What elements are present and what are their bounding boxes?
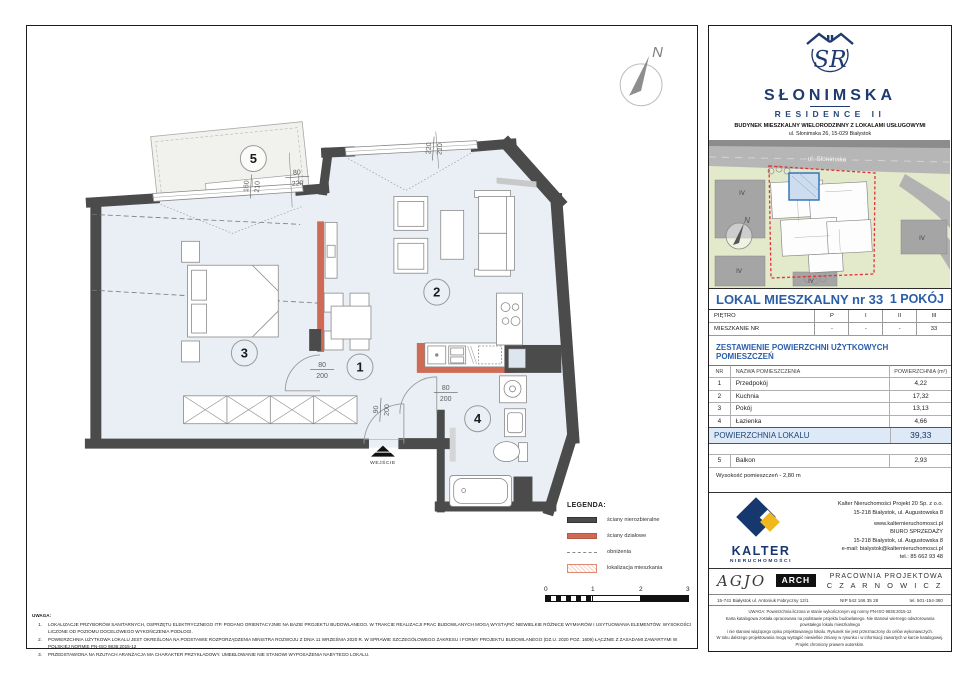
kalter-wordmark-sub: NIERUCHOMOŚCI [717,559,805,564]
scale-tick-3: 3 [686,586,690,593]
radiator [450,428,456,462]
unit-room-count: 1 POKÓJ [890,292,944,306]
fine-print: UWAGA: Powierzchnia liczona w stanie wyk… [709,605,951,651]
bathroom-sink [505,409,526,437]
block-label: IV [808,279,814,285]
unit-location-swatch [567,564,597,573]
svg-text:200: 200 [316,373,328,380]
catalog-sheet: N [0,0,960,678]
floor-plan-panel: N [26,25,698,649]
svg-text:2: 2 [433,285,440,300]
brand-subname: RESIDENCE II [709,109,951,119]
svg-text:210: 210 [254,181,262,193]
scale-tick-2: 2 [639,586,643,593]
scale-bar: 0 1 2 3 [545,586,689,602]
apartment-no-value: 33 [917,323,951,336]
svg-text:SR: SR [813,47,846,73]
apartment-no-label: MIESZKANIE NR [709,323,815,336]
floor-row-label: PIĘTRO [709,310,815,323]
studio-name: PRACOWNIA PROJEKTOWA C Z A R N O W I C Z [827,573,943,590]
studio-address: 15-741 Białystok ul. Antoniuk Fabryczny … [717,598,809,603]
entrance-marker: WEJŚCIE [370,446,396,466]
note-2: 2. POWIERZCHNIA UŻYTKOWA LOKALU JEST OKR… [32,636,692,651]
svg-text:220: 220 [425,142,433,154]
ceiling-drop-swatch [567,552,597,553]
col-header-area: POWIERZCHNIA (m²) [890,365,951,377]
room-5-badge: 5 [240,146,266,172]
area-section-title: ZESTAWIENIE POWIERZCHNI UŻYTKOWYCH POMIE… [709,336,951,365]
table-row: 4 [709,415,731,428]
block-label: IV [739,191,745,197]
legend-item-unit-location: lokalizacja mieszkania [567,564,707,572]
agjo-wordmark: AGJO [717,572,766,590]
block-label: IV [736,269,742,275]
svg-text:80: 80 [293,169,301,177]
developer-contact: Kalter Nieruchomości Projekt 20 Sp. z o.… [805,500,943,562]
compass: N [620,44,663,106]
brand-name: SŁONIMSKA [709,87,951,105]
balcony-row: 5 Balkon 2,93 [709,454,951,468]
compass-needle-icon [629,56,649,96]
entrance-label: WEJŚCIE [370,458,396,466]
scale-tick-1: 1 [591,586,595,593]
developer-website: www.kalternieruchomosci.pl [805,520,943,528]
area-table: NR NAZWA POMIESZCZENIA POWIERZCHNIA (m²)… [709,365,951,427]
table-row: 3 [709,402,731,415]
wardrobe [184,396,357,424]
plan-notes: UWAGA: 1. LOKALIZACJE PRZYBORÓW SANITARN… [32,612,692,658]
legend-item-ceiling-drops: obniżenia [567,548,707,556]
pillow [192,270,207,300]
partition-wall-swatch [567,533,597,539]
studio-phone: tel. 501-154-380 [910,598,943,603]
note-3: 3. PRZEDSTAWIONA NA RZUTACH ARANŻACJA MA… [32,651,692,659]
table-row: 1 [709,377,731,390]
compass-n-label: N [652,44,663,61]
col-header-name: NAZWA POMIESZCZENIA [731,365,891,377]
developer-block: KALTER NIERUCHOMOŚCI Kalter Nieruchomośc… [709,492,951,568]
legend-item-partition-walls: ściany działowe [567,532,707,540]
building-description: BUDYNEK MIESZKALNY WIELORODZINNY Z LOKAL… [709,123,951,129]
map-compass-n-label: N [744,216,750,225]
structural-wall-swatch [567,517,597,523]
block-label: IV [919,236,925,242]
svg-text:200: 200 [440,396,452,403]
svg-text:220: 220 [292,180,304,188]
svg-text:200: 200 [384,404,392,416]
kalter-wordmark: KALTER [717,544,805,558]
brand-underline [810,106,850,107]
washing-machine [500,376,527,403]
svg-text:3: 3 [241,345,248,360]
scale-tick-0: 0 [544,586,548,593]
studio-contact-row: 15-741 Białystok ul. Antoniuk Fabryczny … [709,594,951,605]
total-area-label: POWIERZCHNIA LOKALU [709,428,891,443]
svg-text:1: 1 [356,359,363,374]
svg-text:80: 80 [318,362,326,369]
developer-phone: tel.: 85 662 93 48 [805,553,943,561]
wall-pier [514,477,533,507]
kitchen-counter [425,343,505,367]
developer-email: e-mail: bialystok@kalternieruchomosci.pl [805,545,943,553]
nightstand [182,341,200,362]
legend: LEGENDA: ściany nierozbieralne ściany dz… [567,502,707,580]
empty-space [709,484,951,493]
studio-nip: NIP 542 166 35 28 [840,598,878,603]
coffee-table [441,210,464,259]
street-label: ul. Słonimska [808,155,847,163]
agjo-arch-logo: AGJO ARCH [717,572,816,591]
total-area-value: 39,33 [891,428,952,443]
arch-badge: ARCH [776,574,817,587]
info-panel: SR SŁONIMSKA RESIDENCE II BUDYNEK MIESZK… [708,25,952,652]
notes-title: UWAGA: [32,612,692,620]
legend-title: LEGENDA: [567,502,707,509]
site-map: ul. Słonimska IV IV IV IV [709,140,951,288]
dining-table [331,306,371,339]
note-1: 1. LOKALIZACJE PRZYBORÓW SANITARNYCH, OS… [32,621,692,636]
nightstand [182,241,200,262]
legend-item-structural-walls: ściany nierozbieralne [567,516,707,524]
studio-row: AGJO ARCH PRACOWNIA PROJEKTOWA C Z A R N… [709,568,951,594]
bathtub [450,476,512,507]
toilet [494,442,528,462]
pillow [192,304,207,333]
svg-text:90: 90 [373,405,380,413]
unit-highlight [789,173,819,200]
svg-text:80: 80 [442,385,450,392]
table-gap [709,444,951,454]
floor-table: PIĘTRO P I II III MIESZKANIE NR - - - 33 [709,310,951,336]
kalter-logo: KALTER NIERUCHOMOŚCI [717,499,805,564]
svg-text:160: 160 [243,180,251,192]
cooktop [497,293,523,345]
brand-monogram-icon: SR [799,29,861,81]
building-address: ul. Słonimska 26, 15-029 Białystok [709,131,951,137]
vent-shaft [505,345,562,373]
kalter-diamond-icon [736,499,786,541]
unit-titlebar: LOKAL MIESZKALNY nr 33 1 POKÓJ [709,288,951,310]
table-row: 2 [709,390,731,403]
svg-text:4: 4 [474,411,482,426]
scale-bar-graphic [545,595,689,602]
col-header-no: NR [709,365,731,377]
pillar [309,329,321,351]
svg-text:5: 5 [250,151,257,166]
total-area-row: POWIERZCHNIA LOKALU 39,33 [709,427,951,444]
svg-text:210: 210 [436,143,444,155]
unit-title: LOKAL MIESZKALNY nr 33 [716,292,883,307]
brand-header: SR SŁONIMSKA RESIDENCE II BUDYNEK MIESZK… [709,26,951,140]
ceiling-height-note: Wysokość pomieszczeń - 2,80 m [709,468,951,484]
